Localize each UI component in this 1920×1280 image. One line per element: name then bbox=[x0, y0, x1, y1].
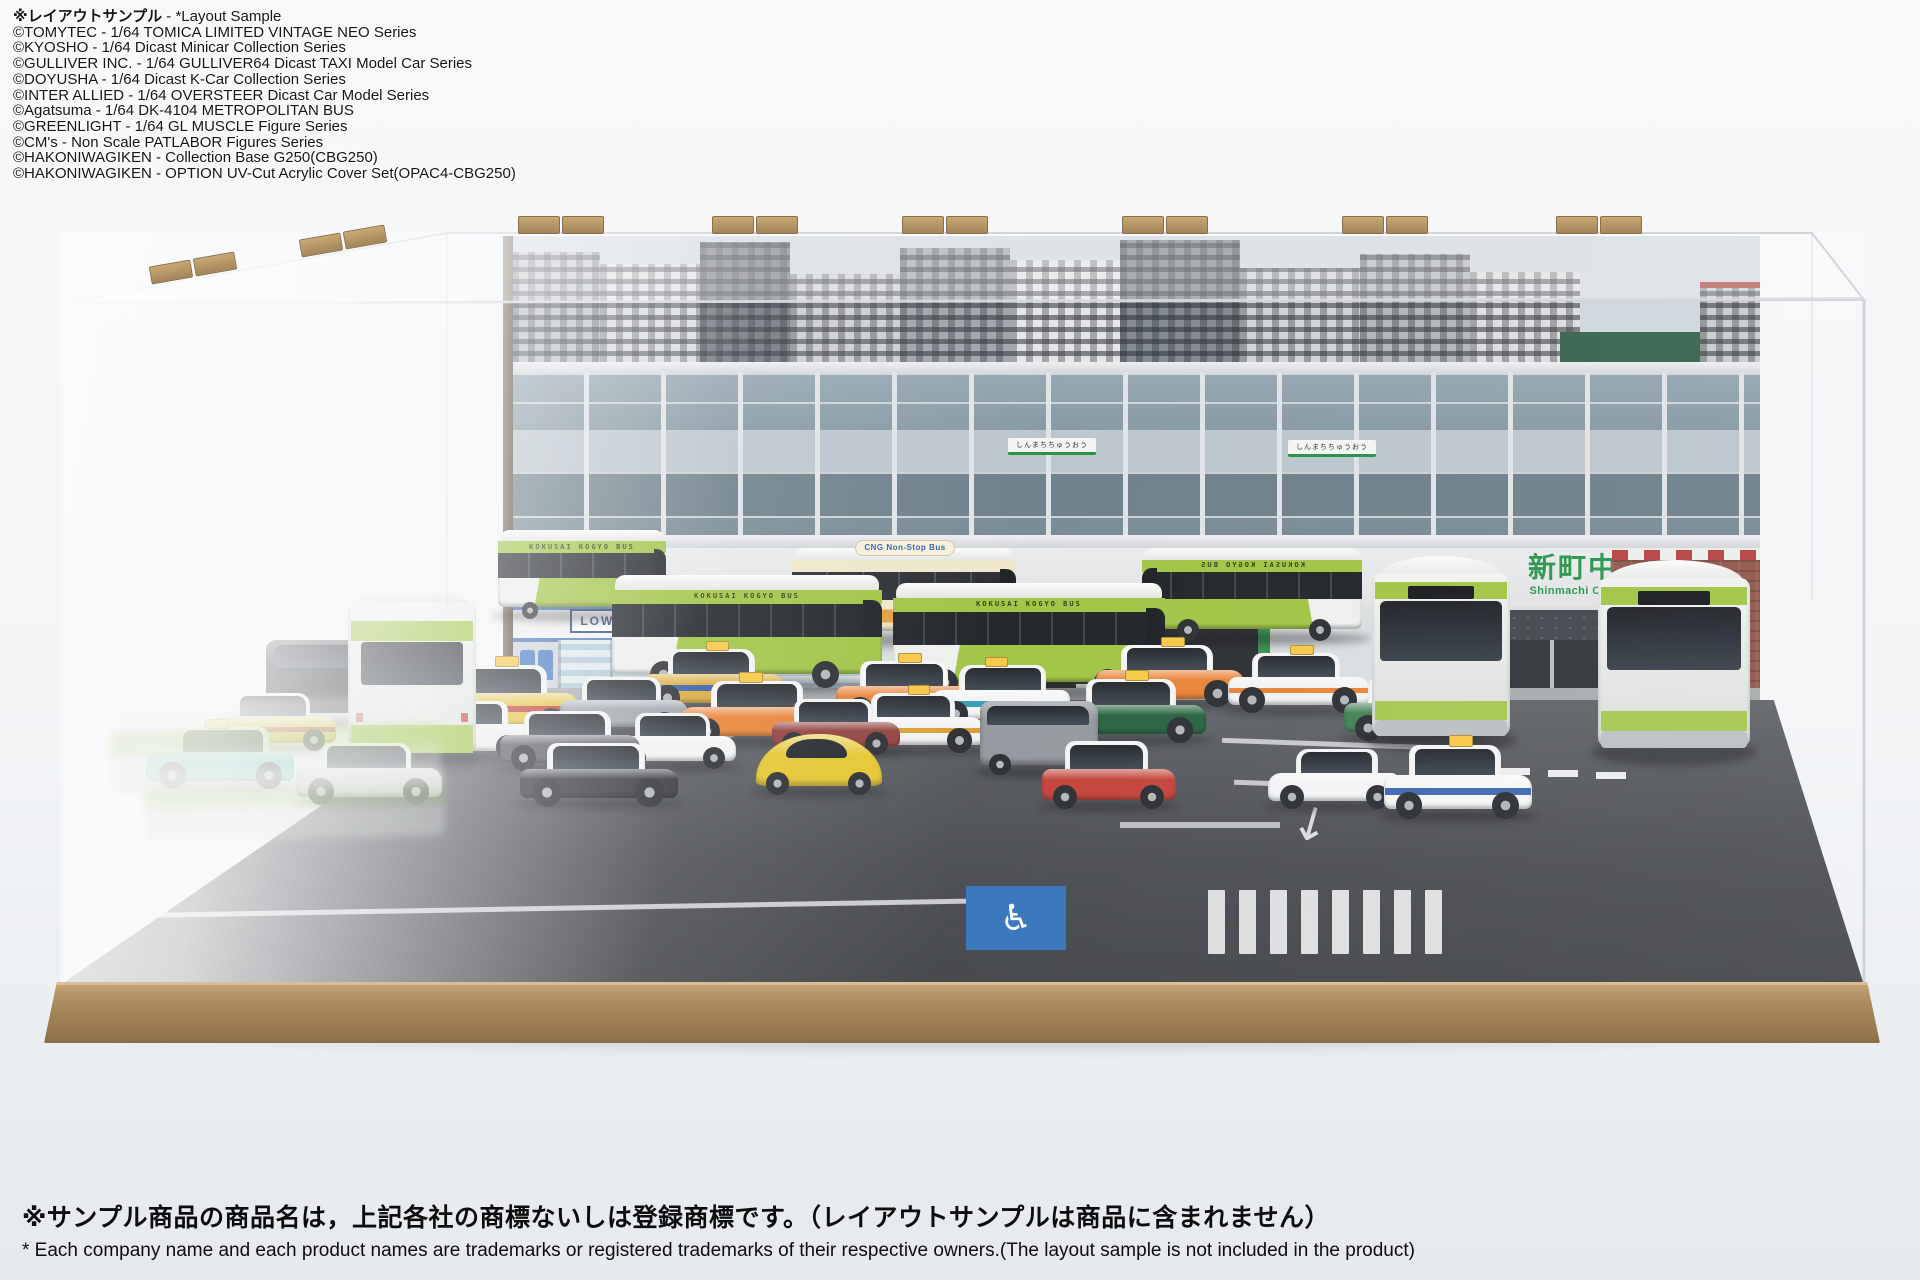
cover-clip bbox=[1600, 216, 1642, 234]
black-sedan bbox=[520, 742, 678, 806]
cover-clip bbox=[946, 216, 988, 234]
credit-line: ©DOYUSHA - 1/64 Dicast K-Car Collection … bbox=[13, 72, 516, 88]
bus-destination-board: CNG Non-Stop Bus bbox=[855, 540, 956, 556]
taxi-roof-sign bbox=[908, 685, 930, 695]
trademark-notice-en: * Each company name and each product nam… bbox=[22, 1240, 1415, 1262]
wooden-display-base bbox=[44, 982, 1880, 1043]
credit-line: ©GREENLIGHT - 1/64 GL MUSCLE Figure Seri… bbox=[13, 119, 516, 135]
taxi-roof-sign bbox=[495, 656, 519, 667]
taxi-white-blue bbox=[1384, 744, 1532, 818]
credit-lines: ※レイアウトサンプル - *Layout Sample ©TOMYTEC - 1… bbox=[13, 9, 516, 182]
cover-clip bbox=[902, 216, 944, 234]
credit-line: ©INTER ALLIED - 1/64 OVERSTEER Dicast Ca… bbox=[13, 88, 516, 104]
trademark-notice-jp: ※サンプル商品の商品名は，上記各社の商標ないしは登録商標です。（レイアウトサンプ… bbox=[22, 1198, 1415, 1234]
taxi-roof-sign bbox=[706, 641, 729, 651]
cover-clip bbox=[562, 216, 604, 234]
taxi-roof-sign bbox=[898, 653, 921, 663]
cover-clip bbox=[1342, 216, 1384, 234]
product-photo: ※レイアウトサンプル - *Layout Sample ©TOMYTEC - 1… bbox=[0, 0, 1920, 1280]
kokusai-bus-front bbox=[1372, 556, 1510, 744]
red-hatchback bbox=[1042, 740, 1176, 808]
cover-clip bbox=[712, 216, 754, 234]
credit-line: ©HAKONIWAGIKEN - OPTION UV-Cut Acrylic C… bbox=[13, 166, 516, 182]
beetle-yellow bbox=[756, 730, 882, 794]
bus-side-text: KOKUSAI KOGYO BUS bbox=[529, 544, 635, 551]
credit-line: ©CM's - Non Scale PATLABOR Figures Serie… bbox=[13, 135, 516, 151]
kokusai-bus: KOKUSAI KOGYO BUS bbox=[1142, 548, 1362, 640]
trademark-notice: ※サンプル商品の商品名は，上記各社の商標ないしは登録商標です。（レイアウトサンプ… bbox=[22, 1198, 1415, 1262]
bus-side-text: KOKUSAI KOGYO BUS bbox=[1199, 562, 1305, 569]
taxi-roof-sign bbox=[1161, 637, 1185, 647]
cover-clip bbox=[1386, 216, 1428, 234]
taxi-roof-sign bbox=[1290, 645, 1313, 655]
layout-sample-title: ※レイアウトサンプル - *Layout Sample bbox=[13, 9, 516, 25]
taxi-roof-sign bbox=[1125, 670, 1149, 680]
cover-clip bbox=[756, 216, 798, 234]
credit-line: ©KYOSHO - 1/64 Dicast Minicar Collection… bbox=[13, 40, 516, 56]
cover-clip bbox=[1122, 216, 1164, 234]
bus-side-text: KOKUSAI KOGYO BUS bbox=[694, 593, 800, 600]
taxi-roof-sign bbox=[985, 657, 1008, 667]
credit-line: ©GULLIVER INC. - 1/64 GULLIVER64 Dicast … bbox=[13, 56, 516, 72]
kokusai-bus-front bbox=[1598, 560, 1750, 756]
credit-line: ©HAKONIWAGIKEN - Collection Base G250(CB… bbox=[13, 150, 516, 166]
credit-line: ©Agatsuma - 1/64 DK-4104 METROPOLITAN BU… bbox=[13, 103, 516, 119]
bus-side-text: KOKUSAI KOGYO BUS bbox=[976, 601, 1082, 608]
vehicles-layer: KOKUSAI KOGYO BUSKOKUSAI KOGYO BUSKOKUSA… bbox=[0, 0, 1920, 1280]
cng-bus-text: CNG Non-Stop Bus bbox=[864, 544, 945, 552]
white-sedan bbox=[1268, 748, 1400, 808]
taxi-roof-sign bbox=[739, 672, 763, 682]
cover-clip bbox=[1556, 216, 1598, 234]
cover-clip bbox=[1166, 216, 1208, 234]
cover-clip bbox=[518, 216, 560, 234]
taxi-roof-sign bbox=[1449, 735, 1473, 747]
acrylic-ghost-reflection bbox=[144, 765, 445, 840]
